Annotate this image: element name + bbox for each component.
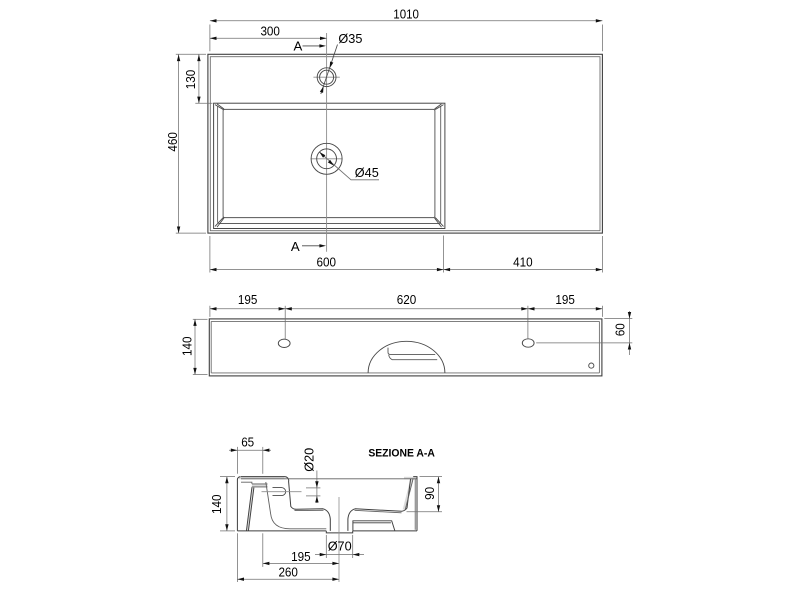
svg-text:Ø70: Ø70 <box>328 538 352 553</box>
svg-text:140: 140 <box>179 336 194 356</box>
svg-text:65: 65 <box>241 435 254 450</box>
svg-text:A: A <box>291 239 300 254</box>
svg-text:195: 195 <box>555 292 575 307</box>
svg-text:620: 620 <box>397 292 417 307</box>
svg-text:Ø45: Ø45 <box>355 165 379 180</box>
svg-text:Ø35: Ø35 <box>338 31 362 46</box>
svg-text:130: 130 <box>183 70 198 90</box>
svg-text:195: 195 <box>238 292 258 307</box>
svg-text:60: 60 <box>613 323 628 336</box>
svg-text:300: 300 <box>260 23 280 38</box>
svg-text:140: 140 <box>209 495 224 515</box>
svg-text:260: 260 <box>278 565 298 580</box>
svg-text:410: 410 <box>513 255 533 270</box>
svg-text:600: 600 <box>317 255 337 270</box>
svg-text:195: 195 <box>291 549 311 564</box>
svg-text:1010: 1010 <box>393 6 419 21</box>
svg-text:Ø20: Ø20 <box>302 448 317 472</box>
svg-text:A: A <box>294 39 303 54</box>
svg-text:460: 460 <box>165 132 180 152</box>
svg-text:90: 90 <box>422 487 437 500</box>
svg-text:SEZIONE A-A: SEZIONE A-A <box>368 447 435 459</box>
